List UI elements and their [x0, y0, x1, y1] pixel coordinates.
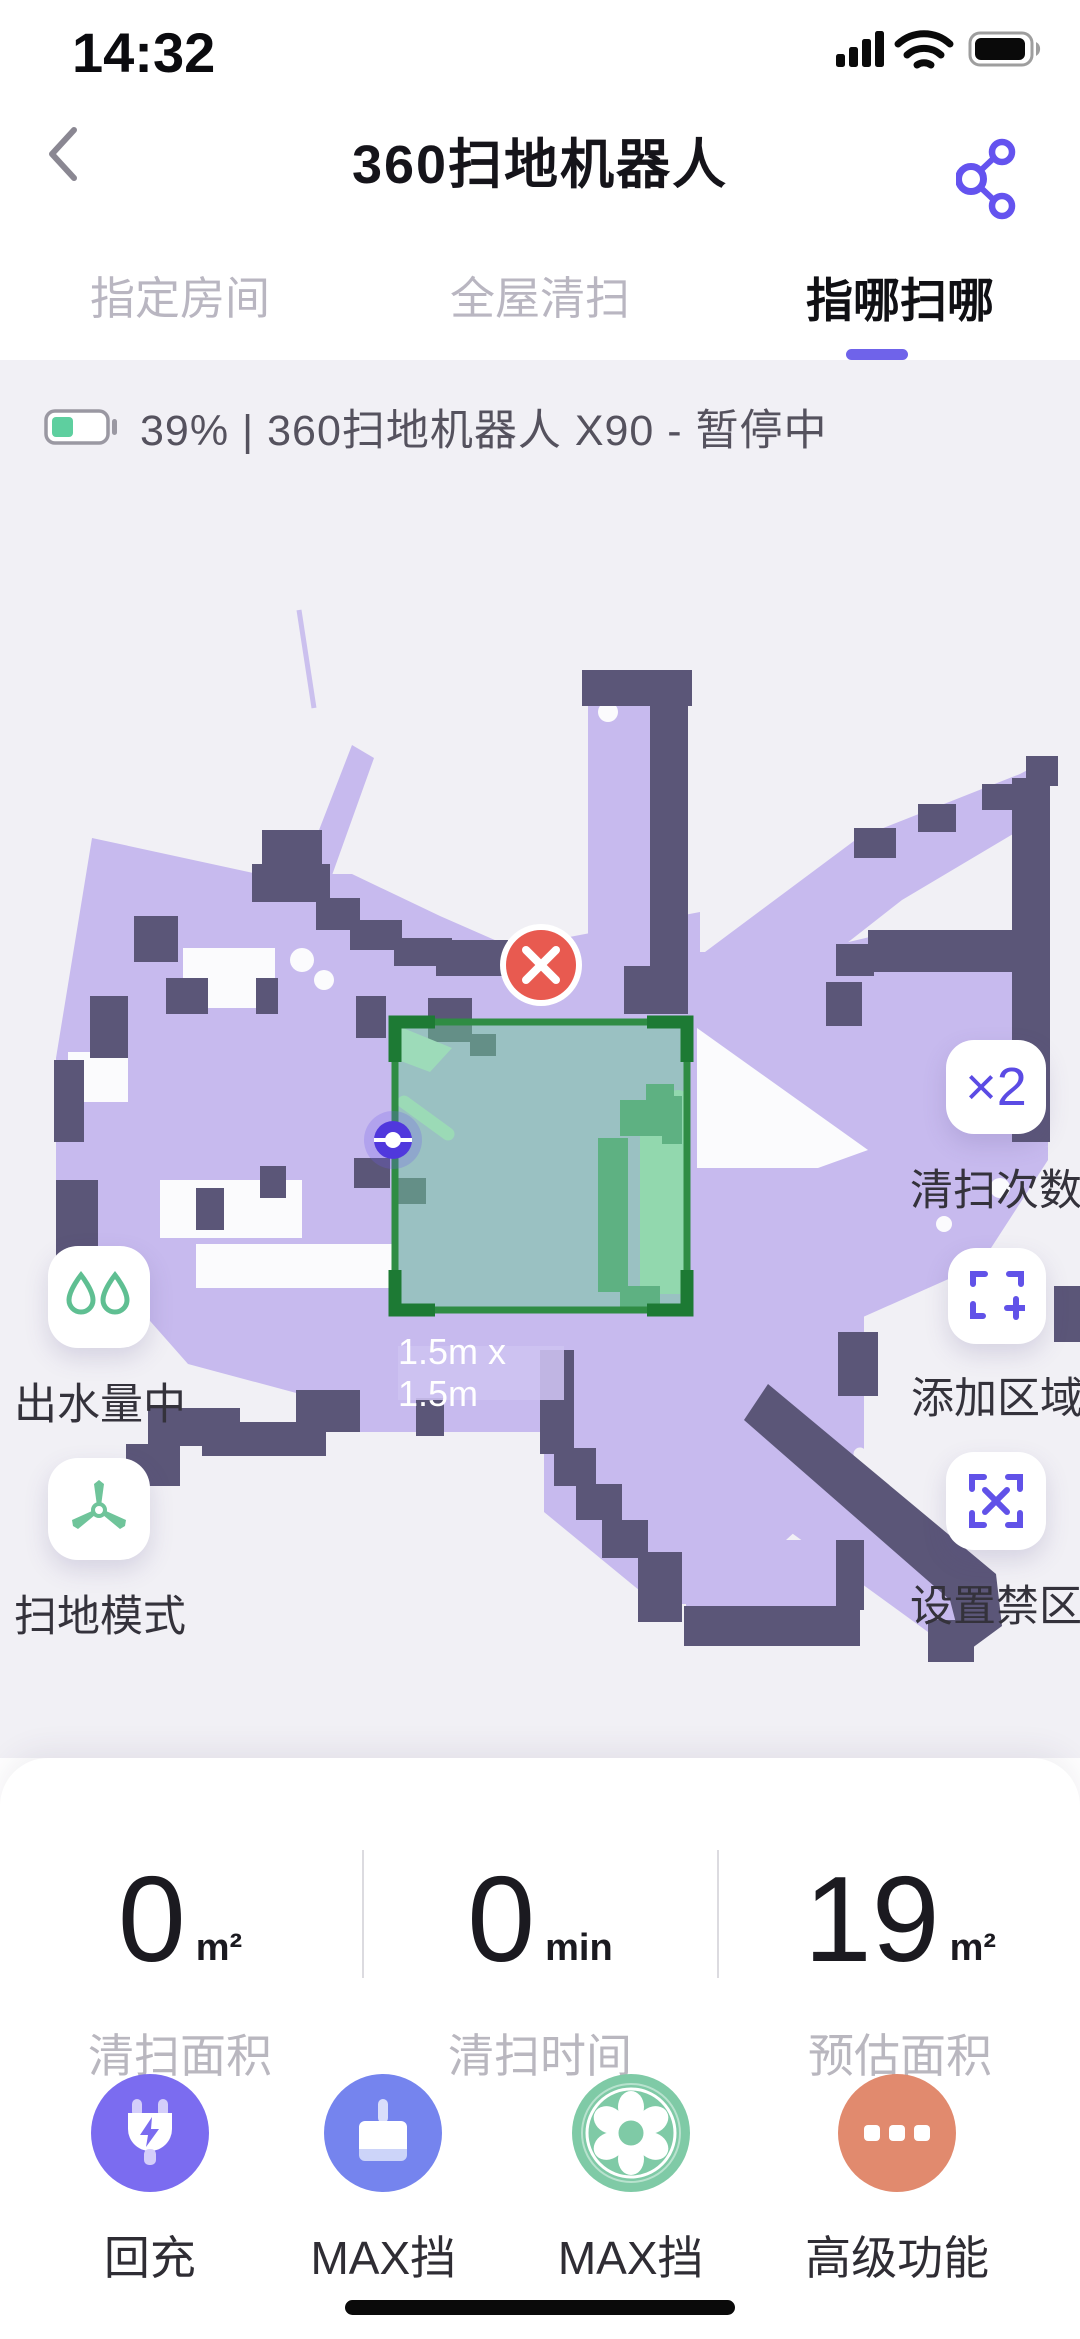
- ellipsis-icon: [864, 2123, 930, 2143]
- robot-marker: [364, 1111, 422, 1169]
- add-zone-label: 添加区域: [911, 1364, 1080, 1426]
- home-indicator[interactable]: [345, 2300, 735, 2315]
- max-gear-button[interactable]: MAX挡: [558, 2074, 704, 2288]
- stat-estimated-area: 19 m² 预估面积: [720, 1820, 1080, 2086]
- add-area-icon: [969, 1268, 1025, 1324]
- bottom-sheet: 0 m² 清扫面积 0 min 清扫时间 19 m² 预估面积: [0, 1758, 1080, 2339]
- tab-spot-clean[interactable]: 指哪扫哪: [720, 262, 1080, 331]
- tab-whole-house[interactable]: 全屋清扫: [360, 262, 720, 331]
- stat-value: 0: [118, 1858, 186, 1980]
- broom-icon: [351, 2097, 415, 2169]
- clean-times-button[interactable]: ×2: [946, 1040, 1046, 1134]
- water-level-label: 出水量中: [14, 1370, 186, 1432]
- plug-icon: [118, 2097, 182, 2169]
- stat-unit: min: [545, 1927, 613, 1970]
- share-button[interactable]: [956, 138, 1018, 220]
- stats-divider: [717, 1850, 719, 1978]
- stat-value: 0: [467, 1858, 535, 1980]
- fan-icon: [577, 2079, 685, 2187]
- cellular-icon: [836, 31, 884, 67]
- device-status: 39% | 360扫地机器人 X90 - 暂停中: [44, 396, 828, 458]
- battery-icon: [970, 33, 1040, 65]
- water-drops-icon: [66, 1271, 132, 1323]
- sweep-mode-button[interactable]: [48, 1458, 150, 1560]
- cancel-zone-button[interactable]: [500, 924, 582, 1006]
- map-area[interactable]: 39% | 360扫地机器人 X90 - 暂停中 1.5m x 1.5m 出水量…: [0, 360, 1080, 1758]
- stat-unit: m²: [196, 1927, 242, 1970]
- active-tab-indicator: [846, 349, 908, 360]
- stats-divider: [362, 1850, 364, 1978]
- tab-rooms[interactable]: 指定房间: [0, 262, 360, 331]
- go-clean-button[interactable]: MAX挡: [310, 2074, 456, 2288]
- sweep-mode-label: 扫地模式: [14, 1582, 186, 1644]
- action-buttons-row: 回充 MAX挡: [40, 2074, 1040, 2288]
- wifi-icon: [898, 34, 950, 65]
- stat-cleaned-area: 0 m² 清扫面积: [0, 1820, 360, 2086]
- page-title: 360扫地机器人: [0, 120, 1080, 199]
- share-nodes-icon: [959, 142, 1013, 216]
- stat-unit: m²: [950, 1927, 996, 1970]
- advanced-features-button[interactable]: 高级功能: [805, 2074, 989, 2288]
- stat-value: 19: [804, 1858, 940, 1980]
- clean-times-label: 清扫次数: [910, 1156, 1080, 1218]
- robot-battery-icon: [44, 404, 122, 450]
- propeller-icon: [64, 1474, 134, 1544]
- status-time: 14:32: [72, 20, 215, 85]
- add-zone-button[interactable]: [948, 1248, 1046, 1344]
- no-go-zone-button[interactable]: [946, 1452, 1046, 1550]
- clean-zone-square[interactable]: [395, 1022, 687, 1310]
- forbidden-area-icon: [967, 1472, 1025, 1530]
- zone-size-label: 1.5m x 1.5m: [398, 1346, 564, 1400]
- tab-bar: 指定房间 全屋清扫 指哪扫哪: [0, 262, 1080, 331]
- stats-row: 0 m² 清扫面积 0 min 清扫时间 19 m² 预估面积: [0, 1820, 1080, 2086]
- water-level-button[interactable]: [48, 1246, 150, 1348]
- floor-map[interactable]: [0, 360, 1080, 1758]
- stat-clean-time: 0 min 清扫时间: [360, 1820, 720, 2086]
- app-screen: 14:32 360扫地机器人: [0, 0, 1080, 2339]
- status-icons: [836, 28, 1046, 77]
- device-status-text: 39% | 360扫地机器人 X90 - 暂停中: [140, 396, 828, 458]
- no-go-zone-label: 设置禁区: [910, 1572, 1080, 1634]
- clean-times-badge: ×2: [965, 1056, 1027, 1118]
- recharge-button[interactable]: 回充: [91, 2074, 209, 2288]
